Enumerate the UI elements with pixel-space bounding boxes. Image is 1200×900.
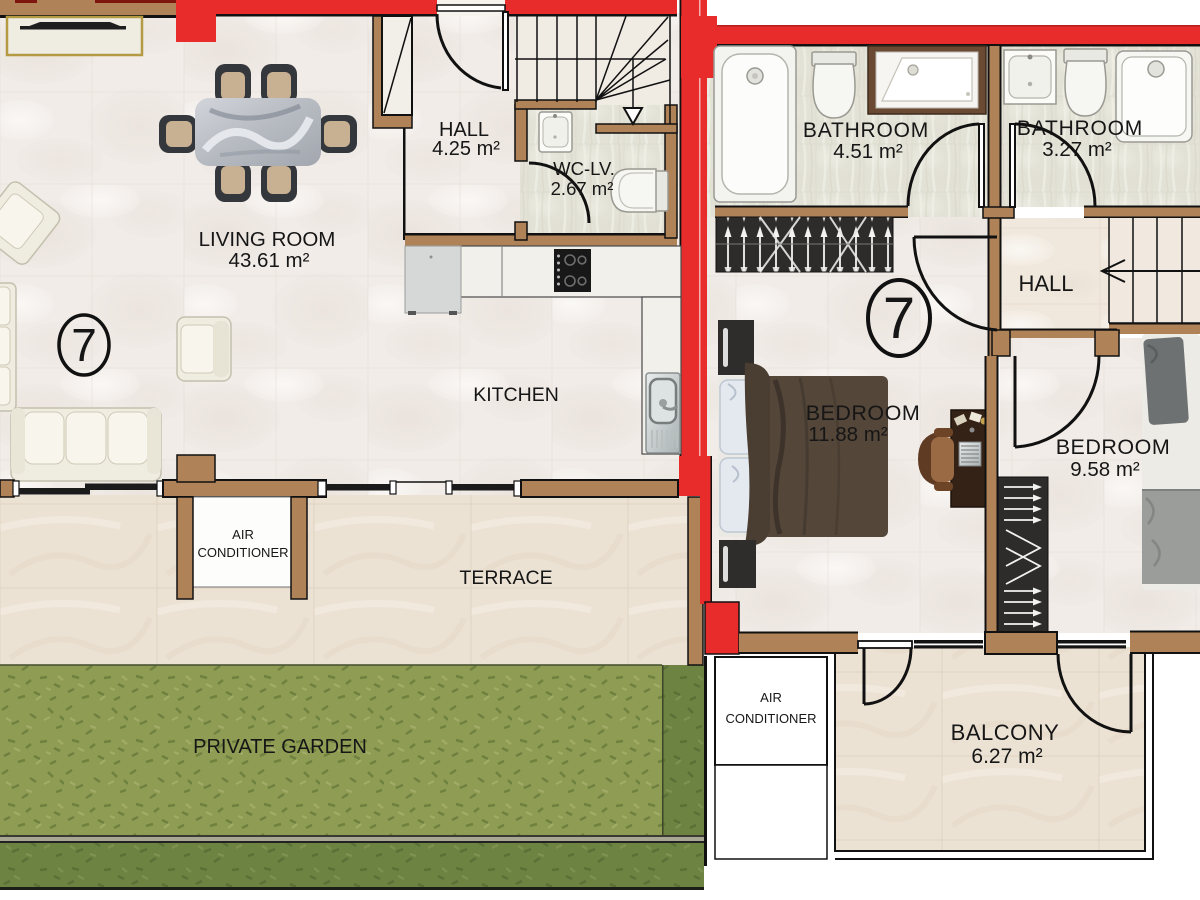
svg-text:43.61 m²: 43.61 m² [229, 249, 310, 272]
svg-text:BEDROOM: BEDROOM [1056, 435, 1171, 459]
svg-text:6.27 m²: 6.27 m² [971, 745, 1042, 768]
svg-text:KITCHEN: KITCHEN [473, 384, 559, 406]
svg-text:4.25 m²: 4.25 m² [432, 138, 500, 160]
svg-text:11.88 m²: 11.88 m² [808, 423, 888, 446]
svg-text:9.58 m²: 9.58 m² [1070, 458, 1140, 481]
svg-text:WC-LV.: WC-LV. [553, 158, 615, 179]
svg-text:LIVING ROOM: LIVING ROOM [199, 228, 336, 251]
svg-text:7: 7 [883, 286, 915, 351]
svg-text:2.67 m²: 2.67 m² [551, 178, 614, 199]
svg-text:CONDITIONER: CONDITIONER [198, 545, 289, 560]
svg-text:PRIVATE GARDEN: PRIVATE GARDEN [193, 736, 367, 758]
svg-text:AIR: AIR [760, 690, 782, 705]
svg-text:AIR: AIR [232, 527, 254, 542]
svg-text:BALCONY: BALCONY [951, 720, 1060, 745]
svg-text:BATHROOM: BATHROOM [1017, 117, 1143, 140]
svg-text:3.27 m²: 3.27 m² [1042, 138, 1112, 161]
svg-text:CONDITIONER: CONDITIONER [726, 711, 817, 726]
svg-text:BEDROOM: BEDROOM [806, 401, 921, 425]
svg-text:7: 7 [71, 319, 97, 371]
svg-text:HALL: HALL [1018, 271, 1073, 296]
svg-text:4.51 m²: 4.51 m² [833, 140, 903, 163]
svg-text:BATHROOM: BATHROOM [803, 119, 929, 142]
svg-text:TERRACE: TERRACE [459, 567, 552, 589]
